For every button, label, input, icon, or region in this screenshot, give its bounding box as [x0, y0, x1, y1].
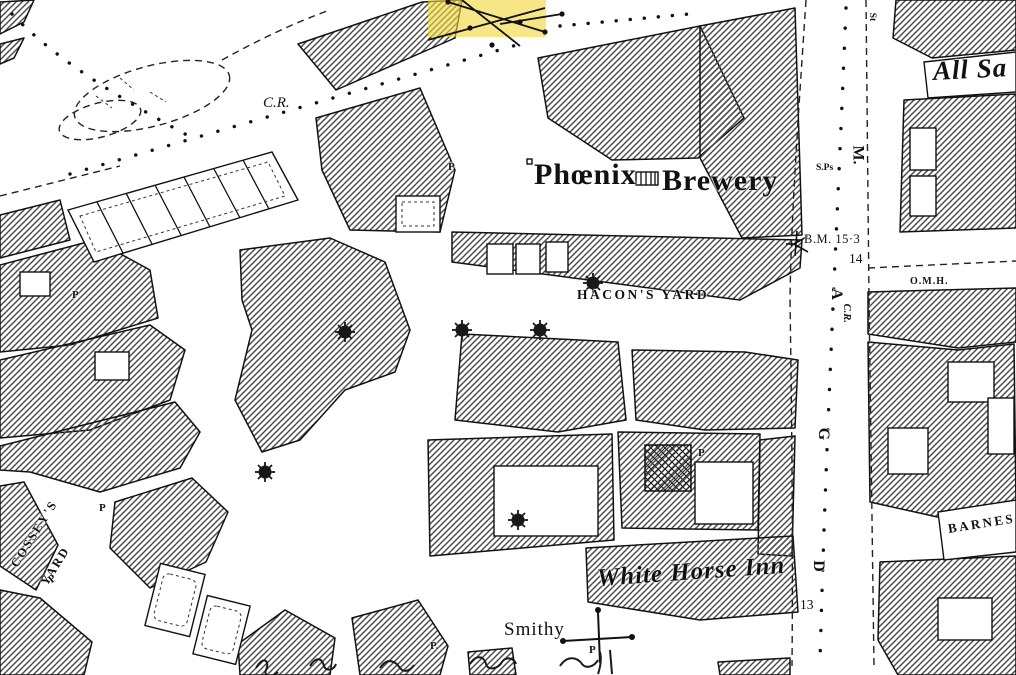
label-brewery: Brewery — [662, 166, 778, 196]
buildings-hatched — [0, 0, 1016, 675]
post-p-7: P. — [430, 641, 438, 652]
smithy-cross-lines — [563, 612, 632, 663]
highlight-marker — [428, 0, 546, 37]
street-letter-d: D — [810, 560, 826, 572]
label-phoenix: Phœnix — [534, 160, 637, 190]
label-sps: S.Ps — [816, 164, 833, 174]
street-cr: C.R. — [840, 304, 851, 323]
map-canvas[interactable]: Phœnix Brewery HACON'S YARD White Horse … — [0, 0, 1016, 675]
post-p-1: P — [448, 162, 455, 173]
post-p-6: P — [589, 645, 596, 656]
map-drawing — [0, 0, 1016, 675]
boundary-cr: C.R. — [263, 96, 290, 111]
label-smithy: Smithy — [504, 620, 565, 639]
label-st-abbrev: St — [866, 13, 876, 21]
glass-roof-building — [645, 445, 691, 491]
street-letter-m: M. — [850, 145, 866, 164]
post-p-5: P — [698, 448, 705, 459]
street-letter-g: G — [815, 428, 831, 440]
label-benchmark: B.M. 15·3 — [804, 233, 860, 246]
label-omh: O.M.H. — [910, 277, 949, 287]
street-letter-a: A — [828, 288, 844, 300]
post-p-2: P — [72, 290, 79, 301]
label-plot-14: 14 — [849, 252, 863, 266]
label-hacons-yard: HACON'S YARD — [577, 288, 709, 302]
post-p-3: P — [99, 503, 106, 514]
label-all-saints: All Sa — [932, 54, 1008, 85]
label-plot-13: 13 — [800, 598, 814, 612]
